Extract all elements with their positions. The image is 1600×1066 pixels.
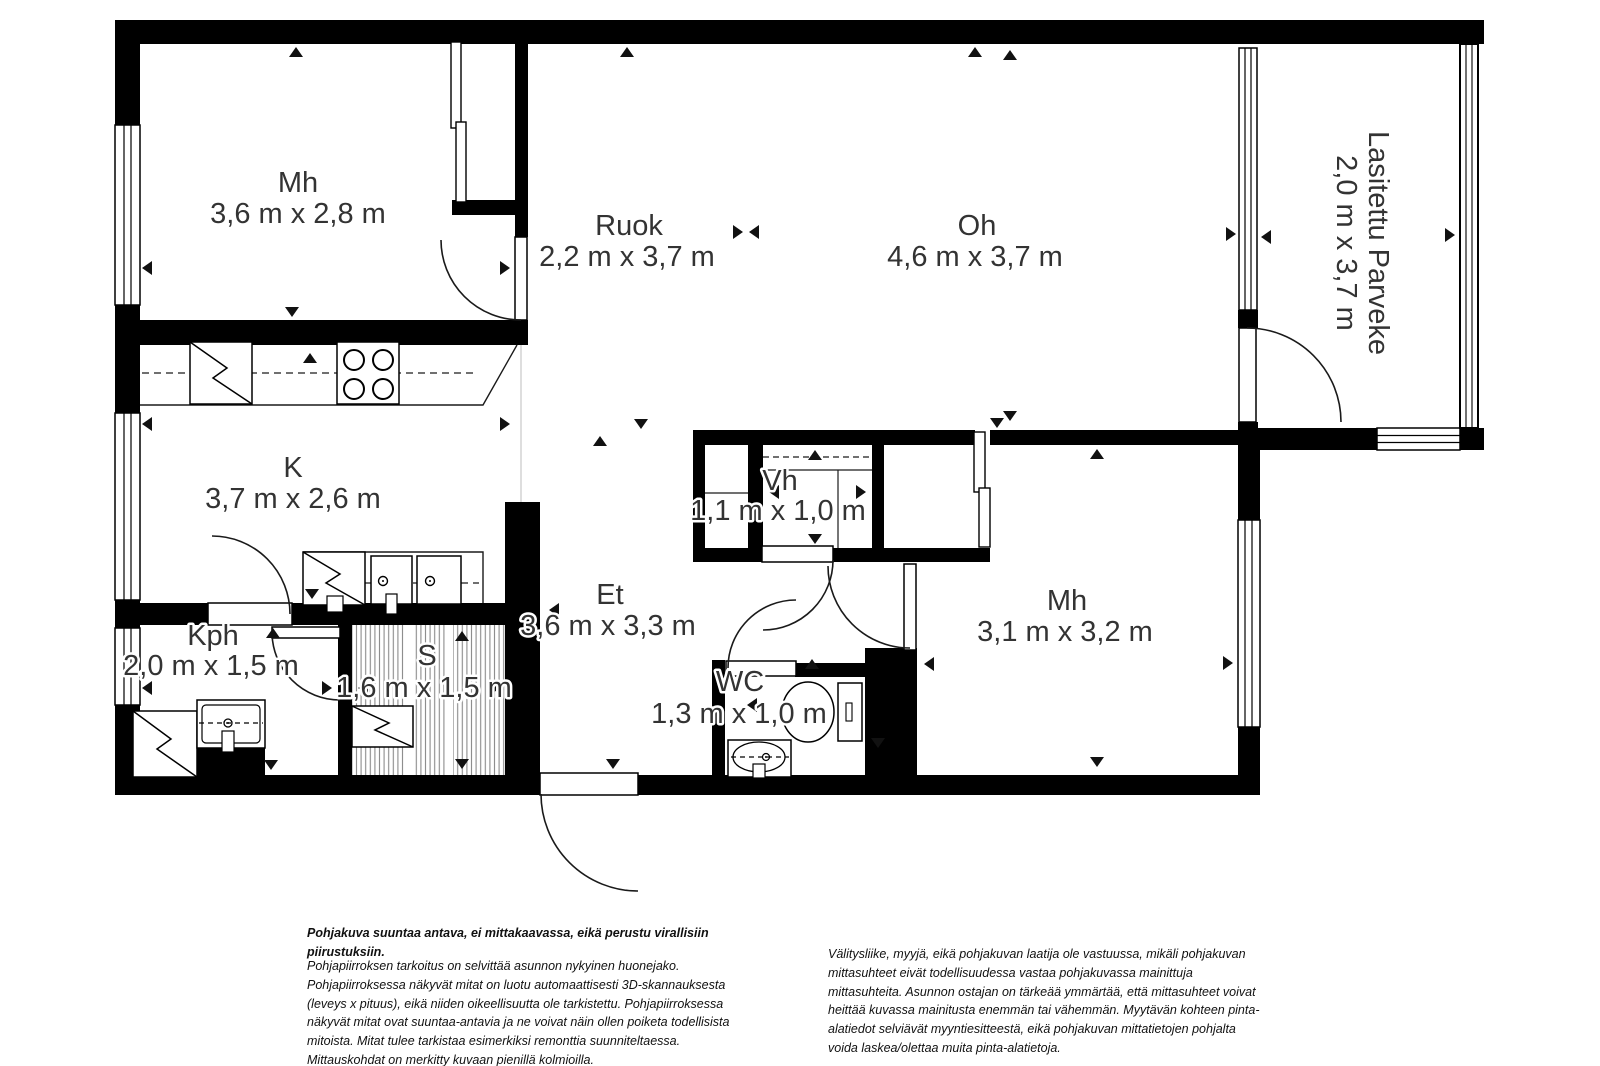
dishwasher-icon: [303, 552, 365, 612]
wardrobe-sliding-doors: [451, 42, 990, 547]
wc-sink-icon: [728, 740, 791, 778]
bathroom-sink-icon: [197, 700, 265, 752]
door-mh2: [828, 564, 916, 650]
disclaimer-left-title: Pohjakuva suuntaa antava, ei mittakaavas…: [307, 924, 752, 962]
room-label-oh: Oh 4,6 m x 3,7 m: [887, 210, 1063, 273]
room-label-mh1: Mh 3,6 m x 2,8 m: [210, 167, 386, 230]
room-label-ruok: Ruok 2,2 m x 3,7 m: [539, 210, 715, 273]
room-dims: 2,2 m x 3,7 m: [539, 241, 715, 273]
room-name: Vh: [762, 465, 797, 497]
door-kph: [208, 536, 292, 625]
room-name: Mh: [1047, 585, 1087, 617]
sliding-door-mh2-closet: [974, 432, 990, 547]
window-balcony-bottom: [1377, 428, 1460, 450]
walls: [115, 20, 1484, 795]
fridge-icon: [190, 342, 252, 404]
room-name: K: [283, 452, 303, 484]
room-dims: 2,0 m x 1,5 m: [123, 650, 299, 682]
floor-plan-svg: Mh 3,6 m x 2,8 m Ruok 2,2 m x 3,7 m Oh 4…: [0, 0, 1600, 1066]
room-dims: 3,7 m x 2,6 m: [205, 483, 381, 515]
room-label-vh: Vh 1,1 m x 1,0 m: [690, 465, 866, 527]
room-name: Oh: [958, 210, 997, 242]
room-name: Ruok: [595, 210, 663, 242]
room-dims: 2,0 m x 3,7 m: [1330, 155, 1362, 331]
room-dims: 1,1 m x 1,0 m: [690, 495, 866, 527]
room-dims: 1,3 m x 1,0 m: [651, 698, 827, 730]
room-dims: 1,6 m x 1,5 m: [336, 672, 512, 704]
room-dims: 3,6 m x 3,3 m: [520, 610, 696, 642]
door-main-entrance: [540, 773, 638, 891]
floor-plan: Mh 3,6 m x 2,8 m Ruok 2,2 m x 3,7 m Oh 4…: [0, 0, 1600, 1066]
door-mh1: [441, 237, 527, 320]
window-mh1: [115, 125, 140, 305]
disclaimer-left-body: Pohjapiirroksen tarkoitus on selvittää a…: [307, 957, 757, 1066]
door-balcony: [1239, 328, 1341, 422]
room-label-parveke: Lasitettu Parveke 2,0 m x 3,7 m: [1330, 131, 1394, 355]
window-kitchen: [115, 413, 140, 600]
room-dims: 4,6 m x 3,7 m: [887, 241, 1063, 273]
sauna-heater-icon: [352, 706, 413, 747]
room-name: S: [417, 640, 436, 672]
window-mh2: [1238, 520, 1260, 727]
room-name: Mh: [278, 167, 318, 199]
room-name: Kph: [187, 620, 239, 652]
room-label-et: Et 3,6 m x 3,3 m: [520, 579, 696, 642]
room-dims: 3,6 m x 2,8 m: [210, 198, 386, 230]
disclaimer-right-body: Välitysliike, myyjä, eikä pohjakuvan laa…: [828, 945, 1268, 1058]
washing-machine-icon: [133, 711, 197, 777]
room-label-mh2: Mh 3,1 m x 3,2 m: [977, 585, 1153, 648]
balcony-glass-wall: [1460, 44, 1478, 428]
room-name: Et: [596, 579, 623, 611]
room-name: WC: [716, 666, 764, 698]
stove-icon: [337, 342, 399, 404]
door-wc: [726, 600, 796, 676]
door-vh: [762, 546, 833, 630]
room-name: Lasitettu Parveke: [1362, 131, 1394, 355]
sliding-door-mh1-closet: [451, 42, 466, 202]
room-label-k: K 3,7 m x 2,6 m: [205, 452, 381, 515]
window-oh-balcony: [1239, 48, 1257, 310]
room-dims: 3,1 m x 3,2 m: [977, 616, 1153, 648]
